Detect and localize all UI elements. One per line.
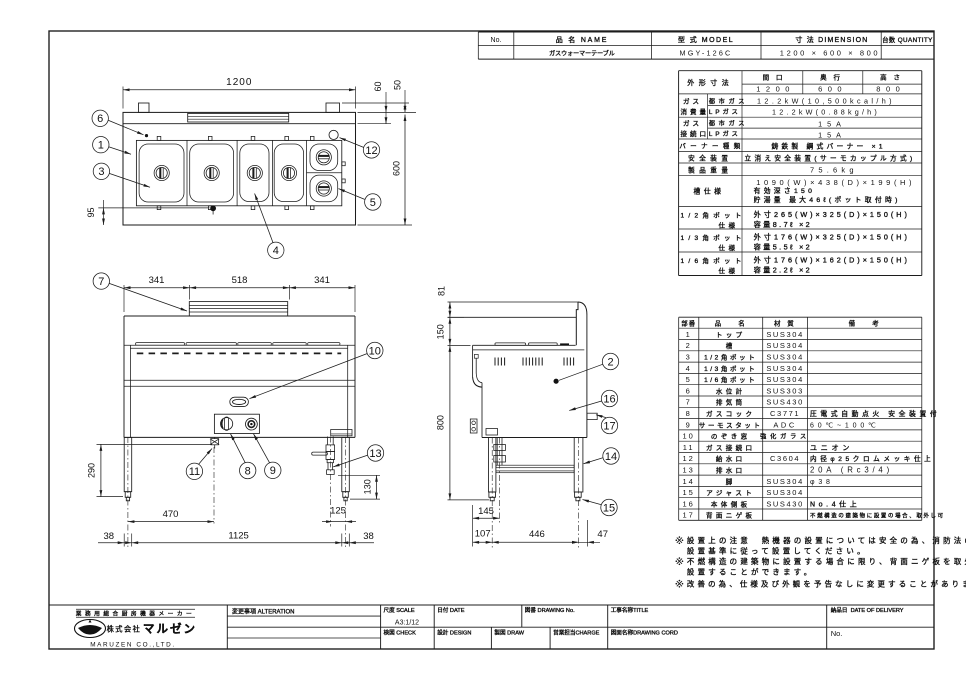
svg-text:150: 150 — [436, 324, 446, 339]
svg-text:107: 107 — [475, 529, 491, 540]
svg-text:内径φ25クロムメッキ仕上: 内径φ25クロムメッキ仕上 — [810, 454, 934, 463]
svg-text:MGY-126C: MGY-126C — [680, 49, 733, 58]
svg-text:貯湯量 最大46ℓ(ポット取付時): 貯湯量 最大46ℓ(ポット取付時) — [754, 195, 901, 204]
svg-text:品 名: 品 名 — [715, 318, 747, 327]
svg-text:SUS304: SUS304 — [766, 488, 804, 497]
svg-text:16: 16 — [683, 499, 695, 508]
svg-text:47: 47 — [597, 529, 608, 540]
svg-text:都市ガス: 都市ガス — [709, 119, 748, 127]
svg-text:消費量: 消費量 — [681, 107, 710, 116]
svg-text:15A: 15A — [818, 120, 846, 129]
svg-text:14: 14 — [605, 451, 617, 463]
svg-text:材 質: 材 質 — [774, 318, 796, 327]
svg-text:1200: 1200 — [756, 85, 795, 94]
svg-text:製品重量: 製品重量 — [688, 165, 732, 174]
svg-text:ガスコック: ガスコック — [706, 409, 756, 418]
svg-text:SUS304: SUS304 — [766, 477, 804, 486]
svg-text:600: 600 — [818, 85, 847, 94]
svg-text:C3604: C3604 — [770, 454, 800, 463]
svg-text:1125: 1125 — [228, 530, 248, 541]
svg-text:ガスウォーマーテーブル: ガスウォーマーテーブル — [549, 50, 615, 58]
svg-text:1/2角ポット: 1/2角ポット — [681, 211, 746, 220]
svg-text:15A: 15A — [818, 131, 846, 140]
svg-text:改善の為、仕様及び外観を予告なしに変更することがあります。: 改善の為、仕様及び外観を予告なしに変更することがあります。 — [687, 580, 966, 589]
svg-text:外形寸法: 外形寸法 — [687, 78, 733, 87]
svg-text:8: 8 — [245, 465, 251, 477]
svg-text:納品日 DATE OF DELIVERY: 納品日 DATE OF DELIVERY — [831, 606, 904, 614]
svg-text:341: 341 — [149, 275, 165, 286]
svg-text:株式会社: 株式会社 — [107, 625, 142, 634]
svg-text:トップ: トップ — [716, 331, 746, 339]
svg-text:検図 CHECK: 検図 CHECK — [384, 629, 417, 637]
svg-text:設置基準に従って設置してください。: 設置基準に従って設置してください。 — [687, 547, 868, 556]
svg-text:No.: No. — [831, 629, 843, 638]
svg-text:安全装置: 安全装置 — [688, 153, 732, 162]
svg-text:槽: 槽 — [726, 341, 736, 350]
svg-text:1200: 1200 — [226, 77, 252, 88]
svg-text:C3771: C3771 — [770, 409, 800, 418]
svg-text:鋳鉄製 綱式バーナー ×1: 鋳鉄製 綱式バーナー ×1 — [771, 142, 885, 151]
svg-text:日付 DATE: 日付 DATE — [437, 606, 465, 614]
svg-text:LPガス: LPガス — [709, 108, 741, 116]
svg-text:600: 600 — [392, 161, 402, 176]
svg-text:設置上の注意 熱機器の設置については安全の為、消防法の: 設置上の注意 熱機器の設置については安全の為、消防法の — [687, 536, 966, 545]
svg-text:60℃~100℃: 60℃~100℃ — [810, 422, 880, 429]
svg-text:寸 法 DIMENSION: 寸 法 DIMENSION — [795, 35, 868, 44]
svg-text:12: 12 — [365, 145, 377, 157]
svg-text:15: 15 — [683, 488, 695, 497]
svg-text:1/3角ポット: 1/3角ポット — [681, 233, 746, 242]
svg-text:12: 12 — [683, 454, 695, 463]
svg-text:備 考: 備 考 — [849, 318, 881, 327]
svg-text:A3:1/12: A3:1/12 — [395, 620, 419, 627]
svg-text:SUS430: SUS430 — [766, 499, 804, 508]
svg-text:φ38: φ38 — [810, 479, 834, 486]
svg-text:本体側板: 本体側板 — [711, 499, 751, 508]
svg-text:LPガス: LPガス — [709, 130, 741, 138]
svg-text:仕様: 仕様 — [719, 243, 739, 252]
svg-text:11: 11 — [189, 466, 200, 478]
svg-text:17: 17 — [603, 420, 615, 432]
svg-text:MARUZEN CO.,LTD.: MARUZEN CO.,LTD. — [90, 641, 175, 648]
svg-text:145: 145 — [478, 506, 494, 517]
svg-text:81: 81 — [436, 286, 446, 296]
svg-text:仕様: 仕様 — [719, 220, 739, 229]
svg-text:部番: 部番 — [681, 318, 696, 327]
svg-text:外寸176(W)×162(D)×150(H): 外寸176(W)×162(D)×150(H) — [754, 256, 910, 265]
svg-text:12.2kW(0.88kg/h): 12.2kW(0.88kg/h) — [772, 108, 880, 117]
svg-text:125: 125 — [330, 506, 346, 517]
svg-text:SUS304: SUS304 — [766, 364, 804, 373]
svg-text:50: 50 — [393, 80, 403, 90]
svg-text:15: 15 — [603, 502, 615, 514]
svg-text:水位計: 水位計 — [716, 386, 746, 395]
svg-text:1/6角ポット: 1/6角ポット — [681, 256, 746, 265]
svg-text:1/2角ポット: 1/2角ポット — [704, 353, 757, 362]
svg-text:1/3角ポット: 1/3角ポット — [704, 364, 757, 373]
svg-text:バーナー種類: バーナー種類 — [679, 141, 744, 150]
svg-text:接続口: 接続口 — [681, 129, 710, 138]
svg-text:SUS303: SUS303 — [766, 386, 804, 395]
svg-text:518: 518 — [232, 275, 248, 286]
svg-text:高 さ: 高 さ — [880, 73, 902, 82]
svg-text:工事名称TITLE: 工事名称TITLE — [611, 606, 649, 614]
svg-text:3: 3 — [98, 166, 104, 178]
svg-text:製図 DRAW: 製図 DRAW — [494, 629, 524, 637]
svg-text:ガス: ガス — [683, 97, 702, 106]
svg-text:4: 4 — [686, 364, 692, 373]
svg-text:圧電式自動点火 安全装置付: 圧電式自動点火 安全装置付 — [810, 409, 940, 418]
svg-text:6: 6 — [97, 113, 103, 125]
svg-text:1: 1 — [686, 330, 692, 339]
svg-text:排水口: 排水口 — [716, 466, 746, 475]
svg-text:SUS304: SUS304 — [766, 375, 804, 384]
svg-text:75.6kg: 75.6kg — [810, 166, 858, 175]
svg-text:38: 38 — [104, 531, 115, 542]
svg-text:台数 QUANTITY: 台数 QUANTITY — [882, 35, 933, 44]
svg-text:341: 341 — [314, 275, 330, 286]
svg-text:13: 13 — [369, 448, 381, 460]
svg-text:13: 13 — [683, 466, 695, 475]
svg-text:立消え安全装置(サーモカップル方式): 立消え安全装置(サーモカップル方式) — [744, 154, 915, 163]
svg-text:16: 16 — [603, 393, 615, 405]
svg-text:60: 60 — [373, 81, 383, 91]
svg-text:3: 3 — [686, 353, 692, 362]
svg-text:のぞき窓: のぞき窓 — [711, 432, 751, 441]
svg-text:品 名 NAME: 品 名 NAME — [556, 35, 609, 44]
svg-text:設計 DESIGN: 設計 DESIGN — [437, 629, 471, 637]
svg-text:ユニオン: ユニオン — [810, 444, 853, 452]
svg-text:38: 38 — [363, 531, 374, 542]
svg-text:営業担当CHARGE: 営業担当CHARGE — [553, 629, 600, 637]
svg-text:1200 × 600 × 800: 1200 × 600 × 800 — [780, 49, 880, 58]
svg-text:No.4仕上: No.4仕上 — [810, 499, 860, 508]
svg-text:変更事項 ALTERATION: 変更事項 ALTERATION — [232, 608, 294, 616]
svg-text:446: 446 — [529, 529, 545, 540]
svg-text:不燃構造の建築物に設置する場合に限り、背面ニゲ板を取外し: 不燃構造の建築物に設置する場合に限り、背面ニゲ板を取外し — [687, 557, 966, 566]
svg-text:800: 800 — [876, 85, 905, 94]
svg-text:図面名称DRAWING CORD: 図面名称DRAWING CORD — [611, 629, 678, 637]
svg-text:排気筒: 排気筒 — [716, 398, 746, 407]
svg-text:ADC: ADC — [773, 420, 796, 429]
svg-text:5: 5 — [370, 197, 376, 209]
svg-text:2: 2 — [686, 341, 692, 350]
svg-text:17: 17 — [683, 511, 695, 520]
svg-text:SUS304: SUS304 — [766, 353, 804, 362]
svg-text:容量5.5ℓ ×2: 容量5.5ℓ ×2 — [754, 243, 812, 252]
svg-text:6: 6 — [686, 386, 692, 395]
svg-text:容量8.7ℓ ×2: 容量8.7ℓ ×2 — [754, 220, 812, 229]
svg-text:有効深さ150: 有効深さ150 — [754, 186, 816, 195]
svg-text:10: 10 — [369, 345, 381, 357]
svg-text:SUS304: SUS304 — [766, 341, 804, 350]
svg-text:7: 7 — [98, 276, 104, 288]
svg-text:95: 95 — [86, 207, 96, 217]
svg-text:不燃構造の建築物に設置の場合、取外し可: 不燃構造の建築物に設置の場合、取外し可 — [810, 512, 945, 520]
svg-text:業務用総合厨房機器メーカー: 業務用総合厨房機器メーカー — [76, 609, 195, 617]
svg-text:給水口: 給水口 — [716, 454, 746, 463]
svg-text:SUS430: SUS430 — [766, 398, 804, 407]
svg-text:20A (Rc3/4): 20A (Rc3/4) — [810, 466, 893, 475]
svg-text:2: 2 — [607, 356, 613, 368]
svg-text:800: 800 — [436, 415, 446, 430]
svg-text:尺度 SCALE: 尺度 SCALE — [384, 606, 415, 614]
svg-text:脚: 脚 — [726, 477, 736, 486]
svg-text:背面ニゲ板: 背面ニゲ板 — [706, 511, 756, 520]
svg-text:マルゼン: マルゼン — [143, 622, 197, 636]
svg-text:290: 290 — [87, 463, 97, 478]
svg-text:容量2.2ℓ ×2: 容量2.2ℓ ×2 — [754, 266, 812, 275]
svg-text:1/6角ポット: 1/6角ポット — [704, 375, 757, 384]
svg-text:サーモスタット: サーモスタット — [699, 420, 763, 429]
svg-text:No.: No. — [491, 37, 502, 44]
svg-text:ガス接続口: ガス接続口 — [706, 443, 756, 452]
svg-text:型 式 MODEL: 型 式 MODEL — [678, 35, 734, 44]
svg-text:奥 行: 奥 行 — [820, 73, 842, 82]
svg-text:4: 4 — [273, 245, 279, 257]
svg-text:都市ガス: 都市ガス — [709, 98, 748, 106]
svg-text:外寸176(W)×325(D)×150(H): 外寸176(W)×325(D)×150(H) — [754, 233, 910, 242]
svg-text:間 口: 間 口 — [763, 74, 785, 82]
svg-text:図番 DRAWING No.: 図番 DRAWING No. — [525, 607, 575, 614]
svg-text:設置することができます。: 設置することができます。 — [687, 568, 815, 577]
svg-text:470: 470 — [163, 509, 179, 520]
svg-text:11: 11 — [683, 443, 695, 452]
svg-text:5: 5 — [686, 375, 692, 384]
svg-text:10: 10 — [683, 432, 695, 441]
svg-text:14: 14 — [683, 477, 695, 486]
svg-text:1090(W)×438(D)×199(H): 1090(W)×438(D)×199(H) — [756, 178, 915, 187]
svg-text:強化ガラス: 強化ガラス — [760, 433, 810, 441]
svg-text:12.2kW(10,500kcal/h): 12.2kW(10,500kcal/h) — [757, 96, 895, 105]
svg-text:外寸265(W)×325(D)×150(H): 外寸265(W)×325(D)×150(H) — [754, 210, 910, 219]
svg-text:130: 130 — [363, 479, 373, 494]
svg-text:ガス: ガス — [683, 118, 702, 127]
svg-text:仕様: 仕様 — [719, 266, 739, 275]
svg-text:SUS304: SUS304 — [766, 330, 804, 339]
svg-text:1: 1 — [98, 140, 104, 152]
svg-text:槽仕様: 槽仕様 — [694, 187, 725, 196]
svg-text:7: 7 — [686, 398, 692, 407]
svg-text:8: 8 — [686, 409, 692, 418]
svg-text:アジャスト: アジャスト — [706, 489, 755, 497]
svg-text:9: 9 — [686, 420, 692, 429]
svg-text:9: 9 — [270, 465, 276, 477]
